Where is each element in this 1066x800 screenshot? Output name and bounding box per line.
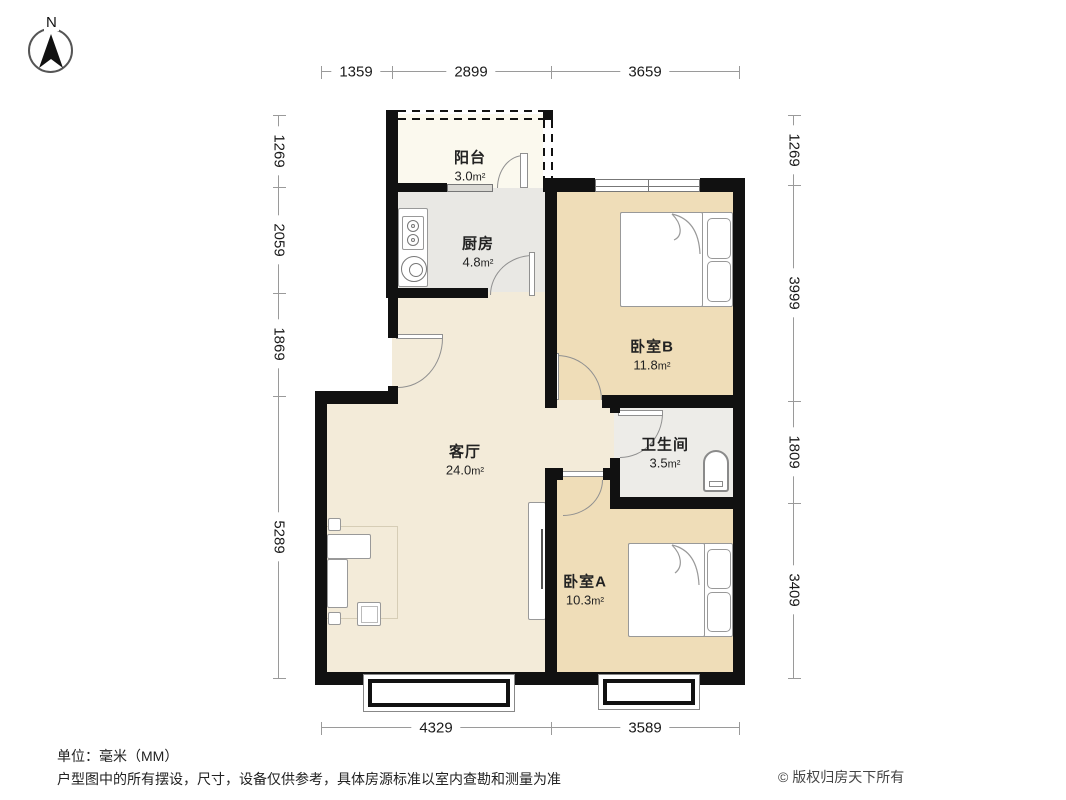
dim-value: 1359 (331, 64, 380, 81)
dim-value: 2059 (271, 215, 288, 264)
wall-segment (700, 178, 733, 192)
wall-segment (315, 391, 398, 404)
side-table (328, 612, 341, 625)
balcony-pass-window (447, 184, 493, 192)
balcony-dashed-line (398, 118, 543, 120)
wall-segment (315, 391, 327, 685)
bedroom-b-window (595, 179, 700, 192)
wall-segment (610, 402, 620, 413)
entry-door-leaf (396, 334, 443, 339)
bedroom-b-label: 卧室B 11.8m² (630, 338, 674, 374)
sofa-section (327, 559, 348, 608)
toilet-tank (709, 481, 723, 487)
balcony-dashed-line (398, 110, 543, 112)
dim-value: 4329 (411, 720, 460, 737)
bathroom-door-leaf (618, 410, 663, 416)
dim-value: 1809 (786, 427, 803, 476)
hallway-floor (551, 400, 614, 474)
balcony-dashed-line (543, 120, 545, 183)
tv (541, 529, 543, 589)
floor-plan: N 房天下 fang.com (0, 0, 1066, 800)
sofa-section (327, 534, 371, 559)
stove (402, 216, 424, 250)
pillow (707, 549, 731, 589)
dimension-line-top: 1359 2899 3659 (321, 71, 739, 72)
wall-segment (610, 497, 745, 509)
wall-segment (543, 110, 553, 120)
bedroom-a-bay-window (598, 674, 700, 710)
stove-burner (407, 234, 419, 246)
side-table (328, 518, 341, 531)
dim-value: 1269 (786, 125, 803, 174)
bedroom-a-label: 卧室A 10.3m² (563, 573, 607, 609)
compass-north-label: N (44, 14, 59, 31)
wall-segment (386, 110, 398, 298)
balcony-label: 阳台 3.0m² (454, 149, 486, 185)
stove-burner (407, 220, 419, 232)
copyright: © 版权归房天下所有 (778, 767, 904, 787)
living-room-label: 客厅 24.0m² (446, 443, 484, 479)
wall-segment (386, 183, 447, 192)
wall-segment (388, 298, 398, 338)
bedroom-a-door-leaf (561, 471, 605, 477)
tv-cabinet (528, 502, 546, 620)
dimension-line-right: 1269 3999 1809 3409 (793, 115, 794, 678)
wall-segment (545, 183, 557, 408)
pillow (707, 261, 731, 302)
dim-value: 3659 (620, 64, 669, 81)
kitchen-door-leaf (529, 252, 535, 296)
dim-value: 1269 (271, 126, 288, 175)
kitchen-label: 厨房 4.8m² (462, 235, 494, 271)
bed-b-sheet-fold (668, 212, 706, 256)
bathroom-label: 卫生间 3.5m² (641, 436, 689, 472)
balcony-dashed-line (551, 120, 553, 183)
dim-value: 3999 (786, 268, 803, 317)
pillow (707, 218, 731, 259)
dim-value: 3409 (786, 565, 803, 614)
living-room-bay-window (363, 674, 515, 712)
armchair (357, 602, 381, 626)
disclaimer: 户型图中的所有摆设，尺寸，设备仅供参考，具体房源标准以室内查勘和测量为准 (57, 769, 561, 789)
wall-segment (545, 468, 557, 685)
wall-segment (733, 178, 745, 685)
bed-a-sheet-fold (670, 543, 704, 587)
kitchen-sink-basin (409, 263, 423, 277)
dim-value: 5289 (271, 512, 288, 561)
dimension-line-bottom: 4329 3589 (321, 727, 739, 728)
dim-value: 1869 (271, 319, 288, 368)
dim-value: 2899 (446, 64, 495, 81)
wall-segment (386, 288, 488, 298)
unit-note: 单位：毫米（MM） (57, 746, 178, 766)
north-arrow-icon (37, 33, 65, 71)
wall-segment (602, 395, 745, 408)
balcony-door-leaf (520, 153, 528, 188)
dim-value: 3589 (620, 720, 669, 737)
toilet (703, 450, 729, 492)
dimension-line-left: 1269 2059 1869 5289 (278, 115, 279, 678)
pillow (707, 592, 731, 632)
wall-segment (603, 468, 620, 480)
